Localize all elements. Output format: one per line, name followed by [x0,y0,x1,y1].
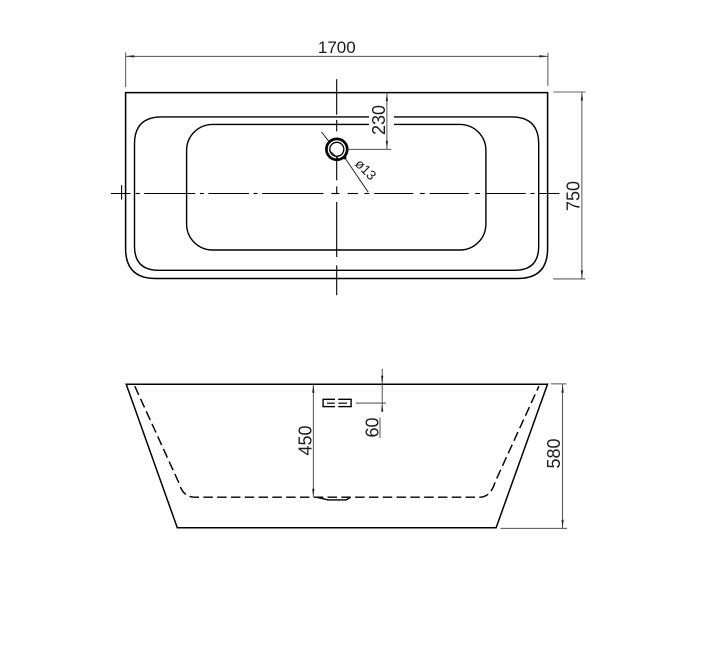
svg-text:230: 230 [369,105,389,135]
svg-text:450: 450 [295,425,315,455]
svg-text:60: 60 [363,417,383,437]
svg-text:750: 750 [564,181,584,211]
svg-text:1700: 1700 [318,38,356,57]
svg-text:580: 580 [544,438,564,468]
